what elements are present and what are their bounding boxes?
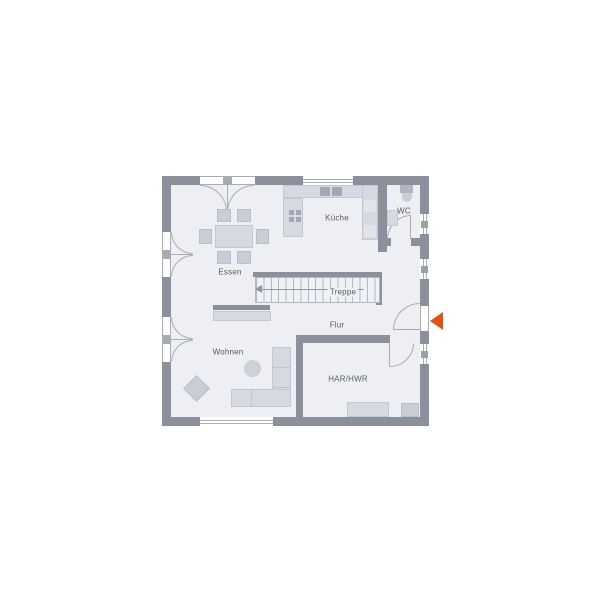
room-label-treppe: Treppe [328, 288, 358, 297]
window-hall [420, 259, 429, 279]
window-kitchen [303, 176, 353, 185]
room-label-har: HAR/HWR [328, 375, 368, 384]
room-label-wc: WC [397, 207, 411, 216]
dining-table [215, 225, 253, 248]
room-label-kueche: Küche [325, 214, 349, 223]
cooktop-burner-icon [296, 217, 301, 222]
wall-left [162, 176, 171, 426]
toilet-tank [400, 185, 413, 193]
entrance-door-opening [420, 306, 429, 331]
wall-wc-bottom-right [411, 238, 420, 246]
kitchen-unit-front [364, 225, 376, 237]
dining-chair [199, 229, 212, 244]
french-door-left-upper-center-post [163, 250, 170, 259]
door-leaf-utility [389, 343, 390, 367]
sideboard [213, 311, 271, 321]
window-wc [420, 214, 429, 234]
cooktop-burner-icon [289, 210, 294, 215]
dining-chair [217, 251, 231, 264]
cooktop-burner-icon [296, 210, 301, 215]
sofa-cushion-line [272, 387, 291, 388]
dining-chair [237, 251, 251, 264]
french-door-top-center-post [223, 177, 232, 184]
room-label-essen: Essen [218, 268, 241, 277]
cooktop-burner-icon [289, 217, 294, 222]
coffee-table [244, 360, 261, 377]
wall-knee-living [213, 305, 270, 310]
door-leaf-left-lower [171, 339, 193, 340]
staircase [255, 277, 380, 303]
door-leaf-wc [410, 215, 411, 239]
dining-chair [237, 209, 251, 222]
utility-appliance [347, 402, 389, 417]
sofa-cushion-line [272, 367, 291, 368]
room-label-wohnen: Wohnen [213, 348, 244, 357]
kitchen-sink-icon [332, 187, 342, 196]
floor-plan: Essen Küche WC Treppe Flur Wohnen HAR/HW… [0, 0, 600, 600]
door-leaf-entrance [393, 329, 420, 330]
wall-utility-top [296, 335, 390, 343]
stairs-direction-arrow-icon [255, 285, 262, 293]
entrance-arrow-icon [430, 312, 443, 330]
door-leaf-left-upper [171, 254, 193, 255]
window-living [200, 417, 273, 426]
dining-chair [217, 209, 231, 222]
room-label-flur: Flur [330, 321, 345, 330]
sofa-horizontal-section [231, 389, 291, 407]
dining-chair [256, 229, 269, 244]
utility-appliance [401, 403, 419, 417]
french-door-left-lower-center-post [163, 335, 170, 344]
window-utility [420, 344, 429, 364]
wall-wc-bottom-left [378, 238, 391, 246]
sofa-cushion-line [251, 389, 252, 407]
wall-utility-left [296, 343, 303, 417]
door-leaf-french-top [227, 185, 228, 212]
kitchen-unit-front [364, 200, 376, 212]
kitchen-sink-icon [320, 187, 330, 196]
